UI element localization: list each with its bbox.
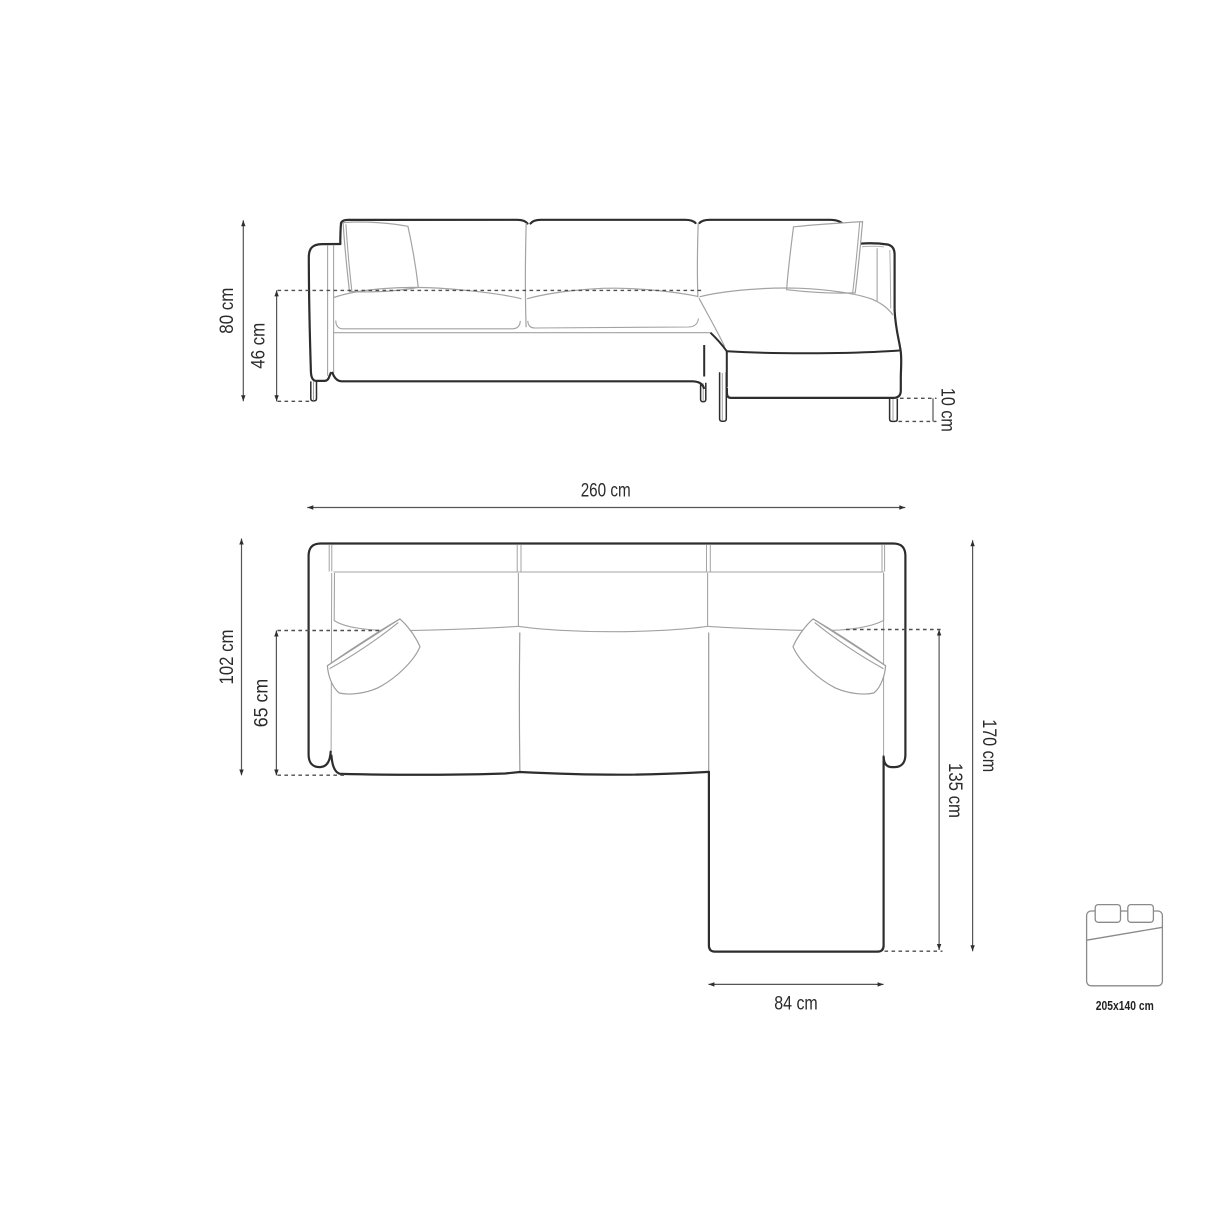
- svg-text:84 cm: 84 cm: [774, 994, 818, 1015]
- svg-text:170 cm: 170 cm: [978, 719, 999, 772]
- svg-text:102 cm: 102 cm: [217, 630, 238, 685]
- svg-text:135 cm: 135 cm: [944, 763, 965, 818]
- svg-text:205x140 cm: 205x140 cm: [1096, 999, 1154, 1013]
- svg-text:46 cm: 46 cm: [249, 323, 270, 369]
- svg-text:260 cm: 260 cm: [581, 481, 631, 502]
- svg-text:80 cm: 80 cm: [217, 288, 238, 334]
- svg-text:65 cm: 65 cm: [251, 679, 272, 728]
- svg-text:10 cm: 10 cm: [937, 388, 958, 432]
